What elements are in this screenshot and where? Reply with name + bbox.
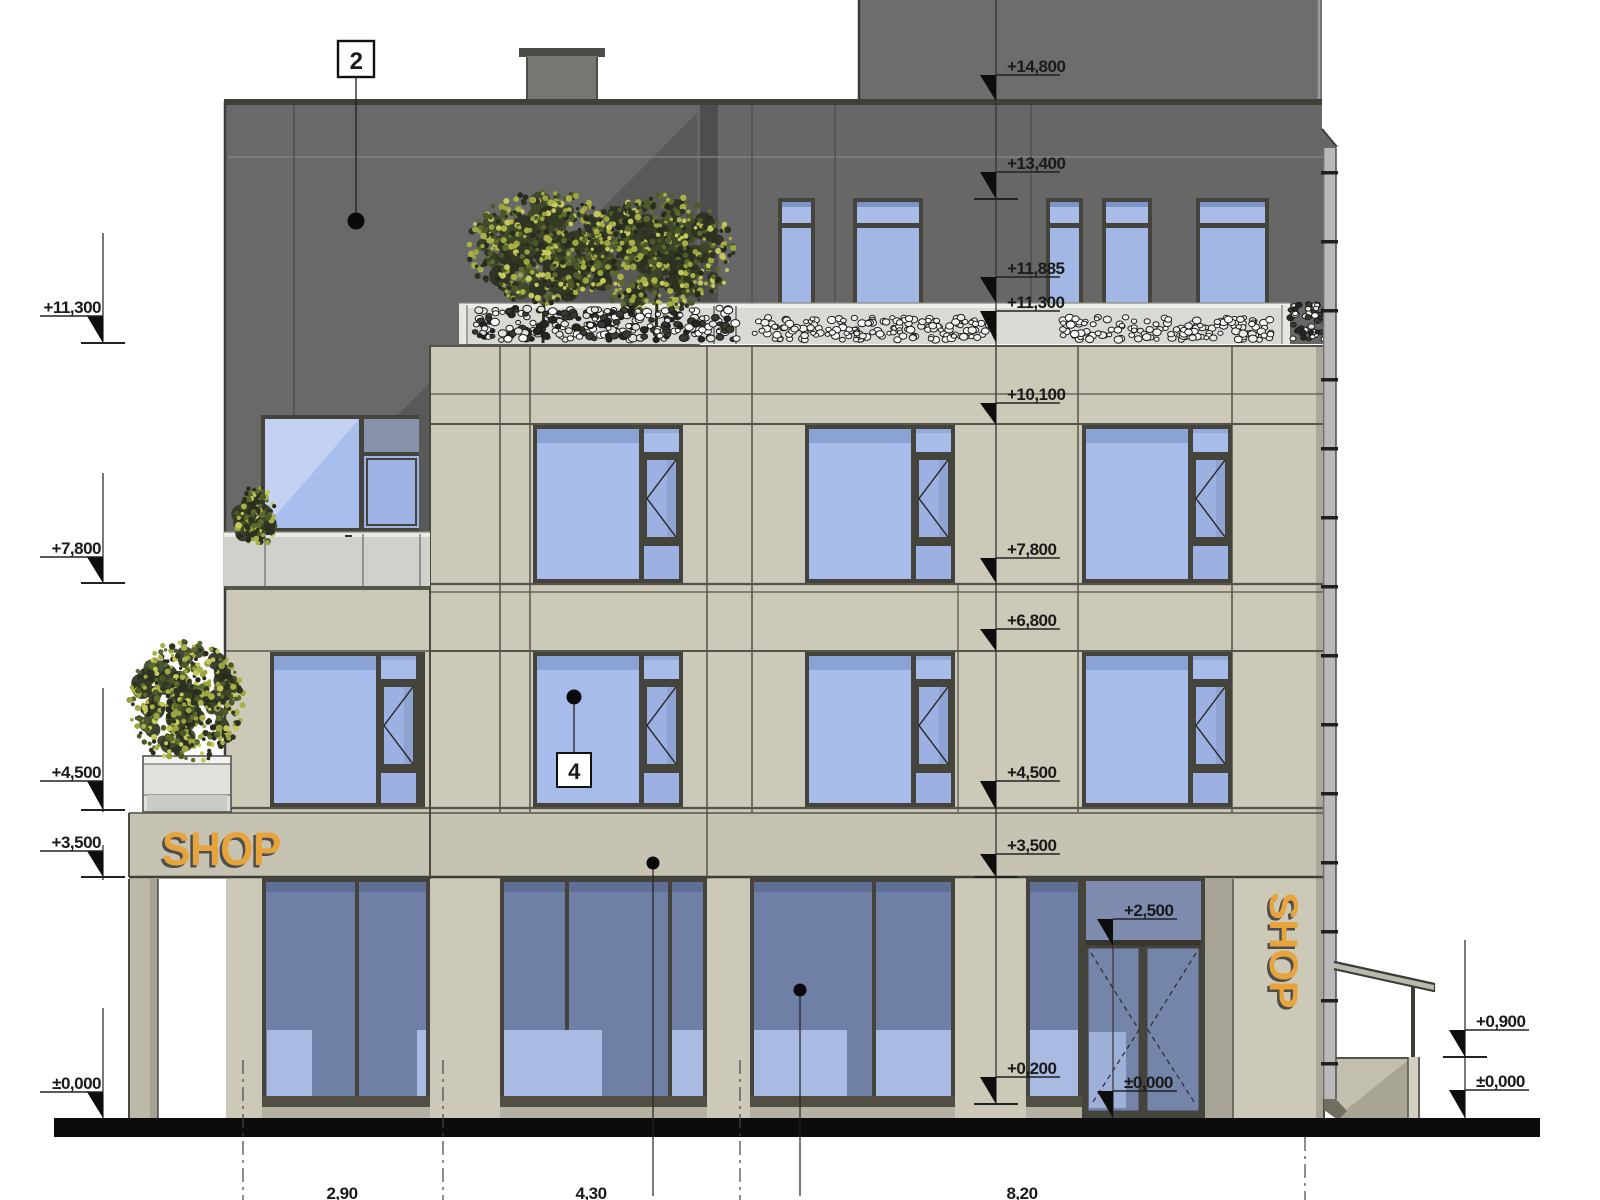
svg-text:+11,300: +11,300	[44, 298, 102, 317]
svg-text:SHOP: SHOP	[1261, 892, 1305, 1008]
svg-text:+3,500: +3,500	[52, 833, 102, 852]
svg-text:+11,885: +11,885	[1007, 259, 1065, 278]
svg-text:+3,500: +3,500	[1007, 836, 1057, 855]
svg-text:±0,000: ±0,000	[1476, 1072, 1525, 1091]
svg-text:2,90: 2,90	[326, 1184, 357, 1200]
svg-text:+0,200: +0,200	[1007, 1059, 1057, 1078]
svg-text:4: 4	[568, 759, 581, 784]
svg-text:+7,800: +7,800	[52, 539, 102, 558]
svg-text:+11,300: +11,300	[1007, 293, 1065, 312]
svg-text:+10,100: +10,100	[1007, 385, 1065, 404]
svg-text:±0,000: ±0,000	[1124, 1073, 1173, 1092]
svg-text:+0,900: +0,900	[1476, 1012, 1526, 1031]
svg-text:+7,800: +7,800	[1007, 540, 1057, 559]
svg-text:4,30: 4,30	[575, 1184, 606, 1200]
svg-text:+13,400: +13,400	[1007, 154, 1065, 173]
svg-text:±0,000: ±0,000	[52, 1074, 101, 1093]
svg-text:+4,500: +4,500	[1007, 763, 1057, 782]
svg-text:8,20: 8,20	[1006, 1184, 1037, 1200]
svg-text:+4,500: +4,500	[52, 763, 102, 782]
svg-text:+2,500: +2,500	[1124, 901, 1174, 920]
svg-text:+6,800: +6,800	[1007, 611, 1057, 630]
svg-text:2: 2	[350, 48, 363, 75]
svg-text:+14,800: +14,800	[1007, 57, 1065, 76]
svg-text:SHOP: SHOP	[162, 822, 281, 875]
